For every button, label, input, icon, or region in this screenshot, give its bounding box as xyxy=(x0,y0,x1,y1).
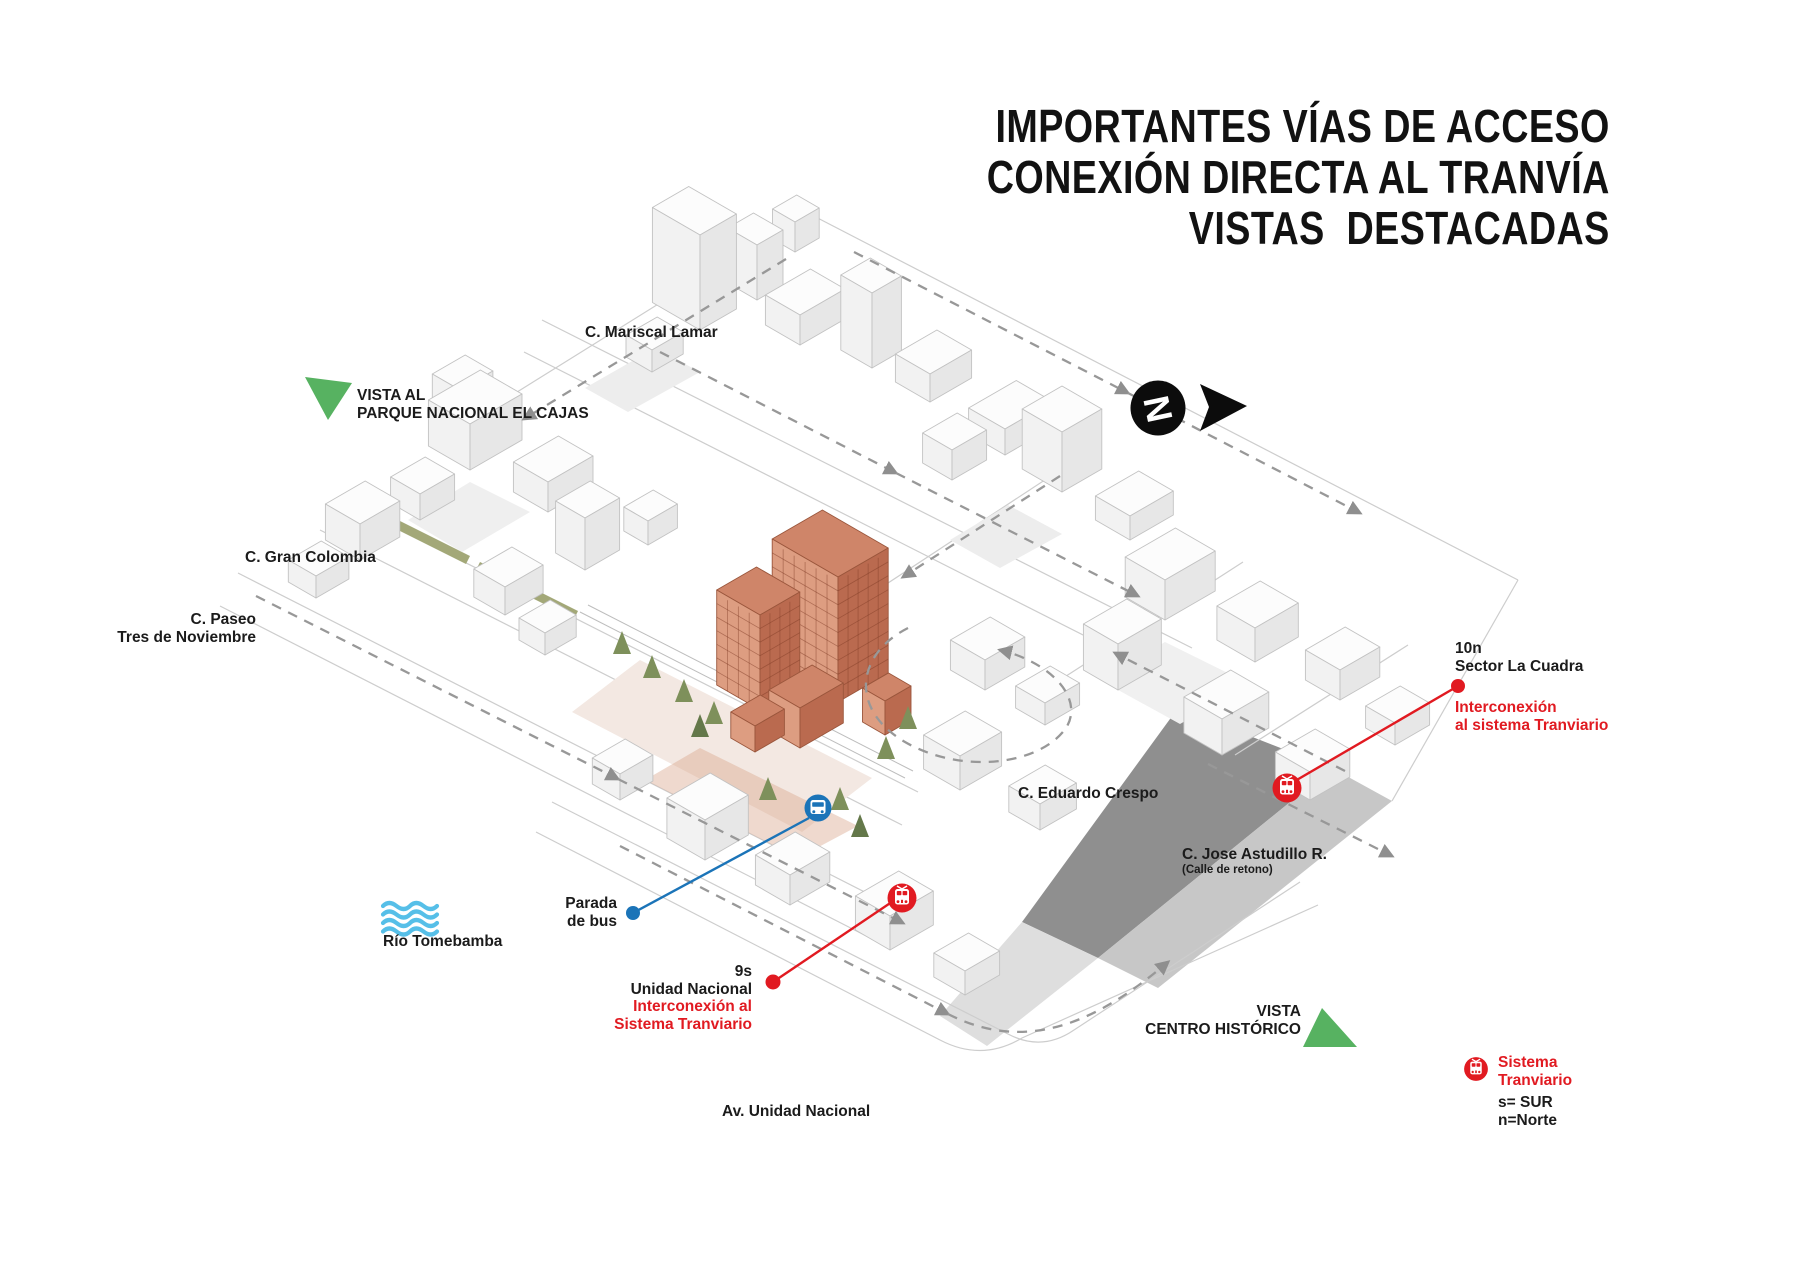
tram-stop-unidad-code: 9s xyxy=(592,963,752,981)
title-line2: CONEXIÓN DIRECTA AL TRANVÍA xyxy=(987,152,1610,203)
street-label-jose-astudillo: C. Jose Astudillo R. (Calle de retono) xyxy=(1182,846,1327,877)
view-label-cajas: VISTA AL PARQUE NACIONAL EL CAJAS xyxy=(357,387,589,422)
bus-stop-label: Parada de bus xyxy=(497,895,617,930)
tram-stop-la-cuadra-code: 10n xyxy=(1455,640,1583,658)
annotations: N xyxy=(305,377,1488,1081)
title-line1: IMPORTANTES VÍAS DE ACCESO xyxy=(987,101,1610,152)
legend-tram-icon xyxy=(1464,1057,1488,1081)
river-label: Río Tomebamba xyxy=(383,933,502,951)
access-roads-diagram: N IMPORTANTES VÍAS DE ACCESO CONEXIÓN DI… xyxy=(0,0,1800,1273)
north-arrow-icon xyxy=(1200,384,1247,431)
title-line3: VISTAS DESTACADAS xyxy=(987,203,1610,254)
street-label-eduardo-crespo: C. Eduardo Crespo xyxy=(1018,785,1158,803)
la-cuadra-dot xyxy=(1451,679,1465,693)
legend-sur: s= SUR xyxy=(1498,1094,1572,1112)
view-label-centro-historico: VISTA CENTRO HISTÓRICO xyxy=(1141,1003,1301,1038)
bus-stop-icon xyxy=(805,795,832,822)
river-waves-icon xyxy=(383,903,437,935)
legend-line2: Tranviario xyxy=(1498,1072,1572,1090)
street-label-paseo-tres-noviembre: C. Paseo Tres de Noviembre xyxy=(90,611,256,646)
tram-icon-la-cuadra xyxy=(1273,774,1302,803)
bus-stop-dot xyxy=(626,906,640,920)
legend: Sistema Tranviario s= SUR n=Norte xyxy=(1498,1054,1572,1130)
tram-stop-la-cuadra-label: 10n Sector La Cuadra xyxy=(1455,640,1583,675)
tram-icon-unidad-nacional xyxy=(888,884,917,913)
legend-line1: Sistema xyxy=(1498,1054,1572,1072)
tram-stop-unidad-nacional-label: 9s Unidad Nacional Interconexión al Sist… xyxy=(592,963,752,1033)
page-title: IMPORTANTES VÍAS DE ACCESO CONEXIÓN DIRE… xyxy=(987,101,1610,254)
tram-stop-unidad-name: Unidad Nacional xyxy=(592,981,752,999)
street-label-jose-astudillo-note: (Calle de retono) xyxy=(1182,864,1327,877)
street-label-av-unidad-nacional: Av. Unidad Nacional xyxy=(722,1103,870,1121)
tram-stop-la-cuadra-name: Sector La Cuadra xyxy=(1455,658,1583,676)
view-triangle-centro-icon xyxy=(1303,1008,1357,1047)
tram-stop-la-cuadra-note: Interconexión al sistema Tranviario xyxy=(1455,699,1608,734)
legend-norte: n=Norte xyxy=(1498,1112,1572,1130)
street-label-gran-colombia: C. Gran Colombia xyxy=(245,549,376,567)
unidad-nacional-dot xyxy=(766,975,781,990)
view-triangle-cajas-icon xyxy=(305,377,352,420)
street-label-mariscal-lamar: C. Mariscal Lamar xyxy=(585,324,718,342)
